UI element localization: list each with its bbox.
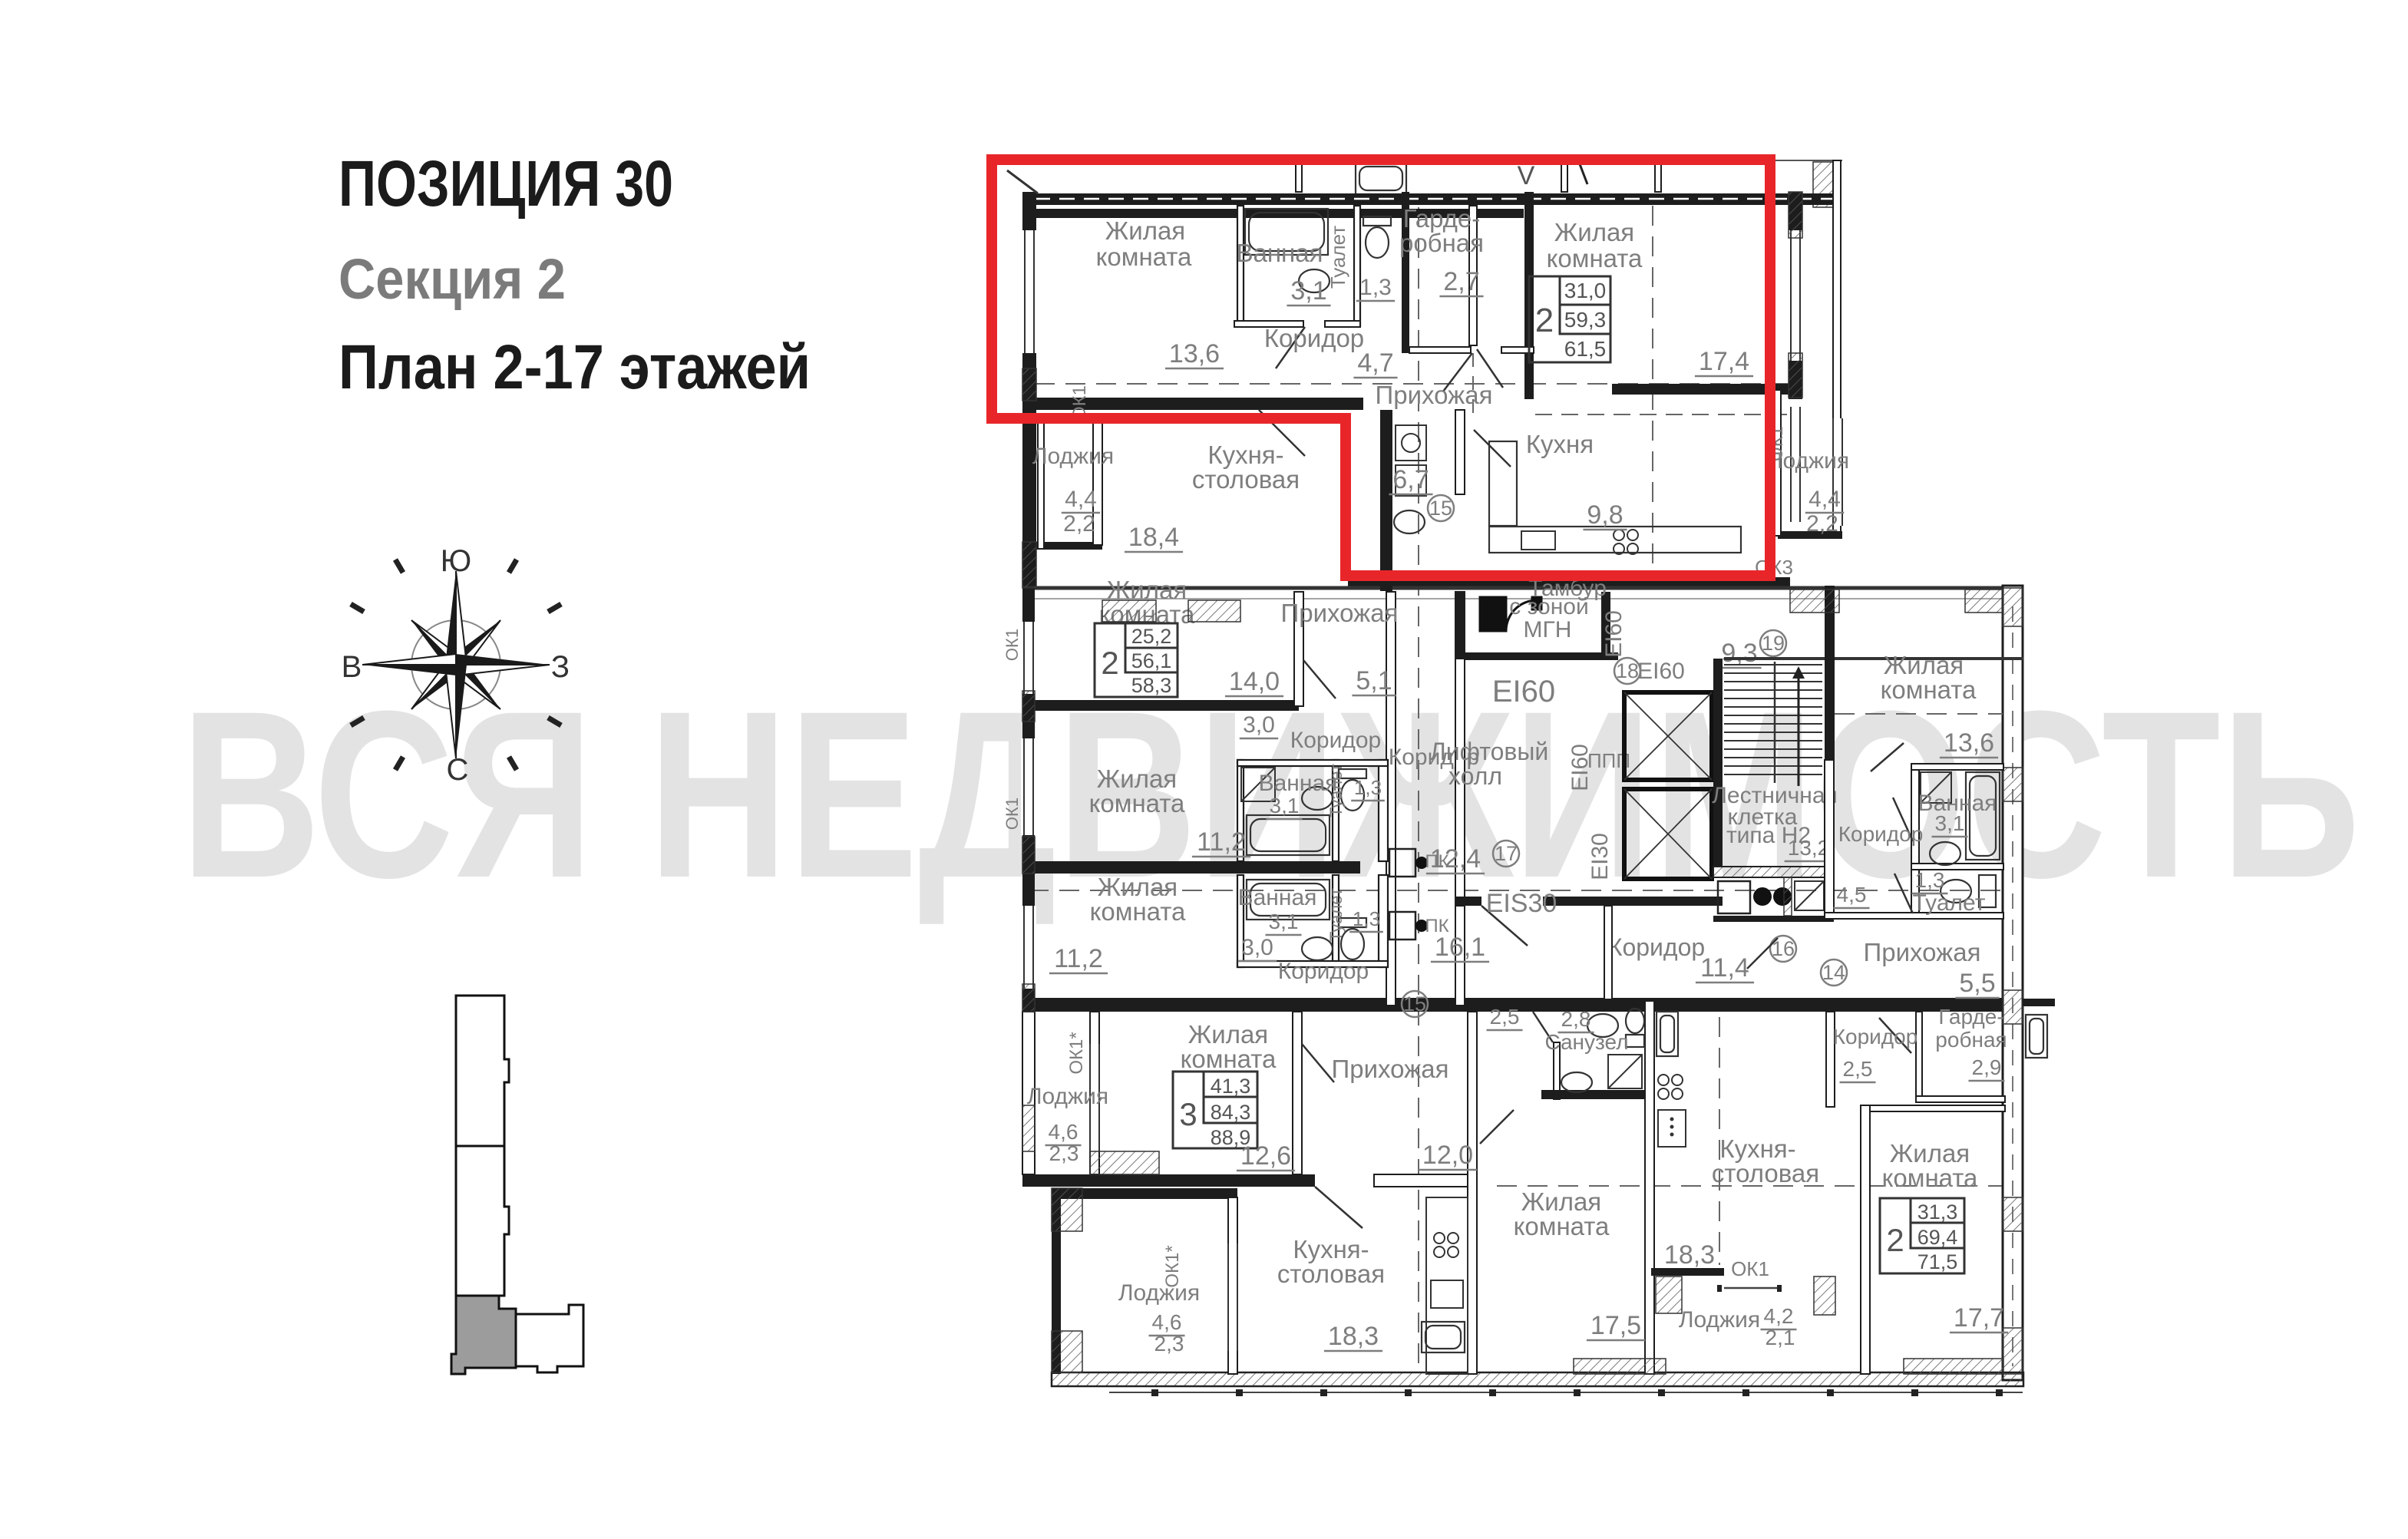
svg-text:4,4: 4,4: [1065, 487, 1097, 512]
svg-text:16,1: 16,1: [1435, 933, 1485, 962]
svg-text:2,3: 2,3: [1049, 1141, 1079, 1165]
svg-text:2,9: 2,9: [1972, 1055, 2002, 1079]
svg-text:1,3: 1,3: [1915, 868, 1945, 892]
svg-text:Прихожая: Прихожая: [1332, 1055, 1449, 1083]
svg-text:V: V: [1518, 161, 1535, 190]
svg-text:41,3: 41,3: [1211, 1075, 1251, 1098]
svg-text:Туалет: Туалет: [1913, 890, 1986, 916]
svg-text:1,3: 1,3: [1359, 275, 1392, 300]
svg-text:18: 18: [1616, 659, 1639, 682]
svg-text:Гарде-: Гарде-: [1938, 1005, 2003, 1029]
svg-text:3,1: 3,1: [1269, 910, 1299, 933]
svg-text:5,5: 5,5: [1959, 969, 1995, 998]
svg-text:ОК1*: ОК1*: [1066, 1032, 1087, 1074]
svg-text:15: 15: [1403, 992, 1426, 1016]
svg-text:С: С: [447, 753, 469, 787]
svg-text:Секция 2: Секция 2: [339, 247, 566, 311]
svg-text:EI60: EI60: [1637, 659, 1685, 684]
svg-text:Лоджия: Лоджия: [1679, 1307, 1760, 1333]
svg-text:Коридор: Коридор: [1608, 933, 1705, 961]
svg-text:столовая: столовая: [1712, 1159, 1819, 1187]
svg-text:69,4: 69,4: [1917, 1226, 1958, 1249]
svg-text:13,6: 13,6: [1169, 339, 1220, 368]
svg-text:В: В: [342, 650, 362, 684]
svg-text:комната: комната: [1096, 243, 1192, 271]
svg-text:3,1: 3,1: [1290, 276, 1326, 305]
svg-text:холл: холл: [1448, 762, 1502, 790]
svg-text:ОК1: ОК1: [1003, 629, 1022, 661]
svg-text:Коридор: Коридор: [1264, 324, 1364, 352]
svg-text:EIS30: EIS30: [1486, 889, 1557, 918]
svg-text:31,0: 31,0: [1564, 279, 1607, 302]
svg-text:Лоджия: Лоджия: [1032, 444, 1114, 469]
svg-text:17: 17: [1495, 842, 1518, 865]
svg-text:1,3: 1,3: [1353, 907, 1380, 930]
svg-text:71,5: 71,5: [1917, 1250, 1958, 1273]
svg-text:3,1: 3,1: [1935, 811, 1965, 835]
svg-text:4,5: 4,5: [1837, 883, 1867, 907]
svg-text:13,2: 13,2: [1788, 836, 1830, 860]
svg-text:Ванная: Ванная: [1259, 771, 1338, 796]
svg-text:2: 2: [1886, 1222, 1904, 1258]
svg-text:59,3: 59,3: [1564, 308, 1607, 332]
svg-text:Лифтовый: Лифтовый: [1430, 738, 1548, 765]
svg-text:3: 3: [1179, 1096, 1197, 1132]
svg-text:Кухня: Кухня: [1526, 430, 1594, 458]
svg-text:2,5: 2,5: [1490, 1005, 1520, 1029]
svg-text:EI60: EI60: [1492, 675, 1555, 708]
svg-text:комната: комната: [1881, 675, 1977, 704]
svg-text:Лоджия: Лоджия: [1027, 1084, 1108, 1109]
svg-text:11,2: 11,2: [1197, 827, 1246, 857]
svg-text:2,1: 2,1: [1766, 1326, 1795, 1349]
svg-text:2,2: 2,2: [1806, 511, 1838, 537]
svg-text:комната: комната: [1181, 1045, 1277, 1073]
svg-text:3,0: 3,0: [1241, 935, 1273, 960]
svg-text:комната: комната: [1089, 789, 1185, 817]
svg-text:6,7: 6,7: [1392, 465, 1429, 494]
svg-text:2,5: 2,5: [1843, 1057, 1873, 1081]
svg-text:столовая: столовая: [1277, 1260, 1385, 1288]
svg-text:Коридор: Коридор: [1838, 822, 1924, 846]
svg-text:робная: робная: [1935, 1028, 2007, 1052]
svg-text:комната: комната: [1882, 1164, 1978, 1192]
svg-text:комната: комната: [1090, 897, 1186, 926]
svg-text:столовая: столовая: [1192, 465, 1300, 494]
svg-text:Прихожая: Прихожая: [1281, 599, 1399, 627]
svg-text:2: 2: [1535, 302, 1554, 339]
svg-text:EI60: EI60: [1601, 610, 1627, 658]
svg-text:1,3: 1,3: [1354, 776, 1382, 799]
svg-text:3,0: 3,0: [1243, 712, 1275, 738]
svg-text:Жилая: Жилая: [1105, 216, 1185, 245]
svg-text:Прихожая: Прихожая: [1376, 381, 1493, 409]
svg-text:14,0: 14,0: [1229, 667, 1280, 696]
svg-text:EI30: EI30: [1587, 833, 1613, 880]
svg-text:18,4: 18,4: [1128, 523, 1179, 552]
svg-text:ОК1: ОК1: [1731, 1257, 1769, 1280]
svg-text:13,6: 13,6: [1944, 728, 1994, 758]
svg-text:4,6: 4,6: [1152, 1310, 1182, 1334]
svg-text:Ванная: Ванная: [1238, 885, 1317, 910]
svg-text:19: 19: [1762, 632, 1785, 655]
svg-text:31,3: 31,3: [1917, 1200, 1958, 1224]
svg-text:4,7: 4,7: [1357, 348, 1393, 378]
svg-text:2,3: 2,3: [1154, 1332, 1184, 1356]
svg-text:12,4: 12,4: [1430, 844, 1481, 874]
svg-text:Лоджия: Лоджия: [1118, 1280, 1200, 1306]
svg-text:18,3: 18,3: [1328, 1322, 1379, 1351]
svg-text:11,2: 11,2: [1054, 944, 1103, 973]
svg-text:ОК1: ОК1: [1003, 798, 1022, 830]
svg-text:2,7: 2,7: [1443, 267, 1479, 296]
svg-text:с зоной: с зоной: [1509, 594, 1588, 619]
svg-text:3,1: 3,1: [1270, 794, 1300, 817]
svg-text:Коридор: Коридор: [1833, 1025, 1918, 1049]
svg-text:17,7: 17,7: [1954, 1303, 2004, 1333]
svg-text:14: 14: [1822, 961, 1845, 984]
svg-text:2,8: 2,8: [1561, 1007, 1591, 1031]
svg-text:МГН: МГН: [1524, 617, 1572, 642]
svg-text:4,4: 4,4: [1808, 487, 1841, 512]
svg-text:9,3: 9,3: [1721, 639, 1757, 668]
svg-text:З: З: [551, 650, 570, 684]
svg-text:12,6: 12,6: [1240, 1141, 1291, 1171]
svg-text:ОК1*: ОК1*: [1162, 1245, 1183, 1287]
svg-text:2: 2: [1101, 645, 1118, 681]
svg-text:2,2: 2,2: [1063, 511, 1095, 537]
svg-text:Туалет: Туалет: [1326, 764, 1346, 817]
svg-text:18,3: 18,3: [1664, 1240, 1715, 1270]
svg-text:комната: комната: [1514, 1212, 1610, 1240]
svg-text:План 2-17 этажей: План 2-17 этажей: [339, 332, 811, 402]
svg-text:12,0: 12,0: [1422, 1141, 1473, 1170]
svg-text:84,3: 84,3: [1211, 1101, 1251, 1124]
svg-text:робная: робная: [1399, 229, 1484, 257]
svg-text:ПОЗИЦИЯ 30: ПОЗИЦИЯ 30: [339, 147, 673, 220]
svg-text:Прихожая: Прихожая: [1864, 938, 1981, 966]
svg-text:58,3: 58,3: [1131, 674, 1172, 697]
svg-text:Санузел: Санузел: [1544, 1030, 1628, 1054]
svg-text:15: 15: [1429, 497, 1452, 520]
svg-text:5,1: 5,1: [1356, 666, 1392, 695]
svg-text:4,2: 4,2: [1764, 1304, 1794, 1328]
svg-text:Жилая: Жилая: [1554, 218, 1634, 246]
svg-text:61,5: 61,5: [1564, 337, 1607, 361]
svg-text:Ванная: Ванная: [1236, 239, 1323, 267]
svg-text:Коридор: Коридор: [1290, 728, 1381, 753]
svg-text:Ю: Ю: [441, 544, 471, 578]
svg-text:Туалет: Туалет: [1326, 888, 1346, 942]
svg-text:9,8: 9,8: [1587, 500, 1623, 530]
svg-text:11,4: 11,4: [1700, 953, 1749, 983]
svg-text:комната: комната: [1547, 244, 1643, 272]
svg-text:Коридор: Коридор: [1278, 959, 1369, 984]
svg-text:17,5: 17,5: [1590, 1311, 1641, 1340]
svg-text:Туалет: Туалет: [1326, 226, 1349, 289]
svg-text:4,6: 4,6: [1049, 1120, 1078, 1144]
svg-text:25,2: 25,2: [1131, 625, 1172, 648]
svg-text:56,1: 56,1: [1131, 649, 1172, 672]
svg-text:17,4: 17,4: [1699, 347, 1749, 376]
